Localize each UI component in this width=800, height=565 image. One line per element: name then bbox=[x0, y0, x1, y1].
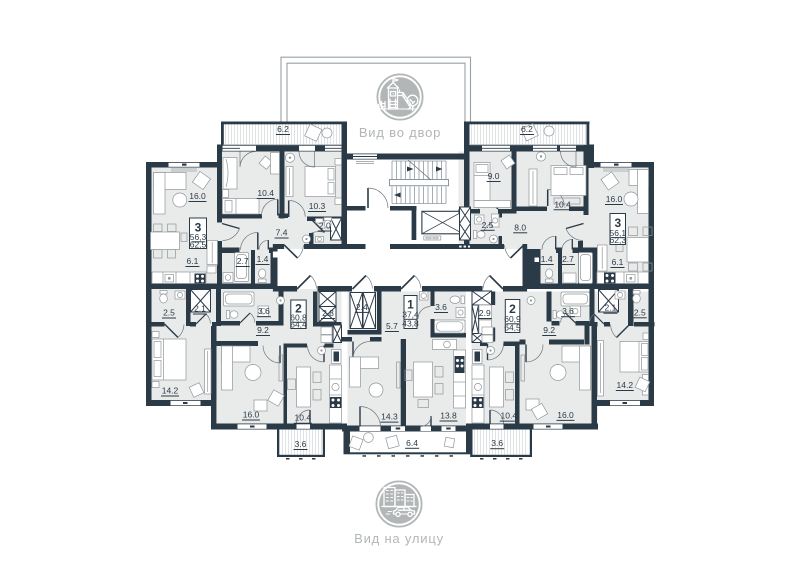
svg-text:10.4: 10.4 bbox=[257, 188, 274, 198]
svg-text:2.5: 2.5 bbox=[634, 307, 646, 317]
svg-text:14.2: 14.2 bbox=[162, 386, 179, 396]
svg-text:6.1: 6.1 bbox=[612, 257, 624, 267]
svg-text:10.4: 10.4 bbox=[295, 413, 312, 423]
svg-text:14.2: 14.2 bbox=[617, 380, 634, 390]
svg-text:2.8: 2.8 bbox=[322, 308, 334, 318]
svg-text:9.2: 9.2 bbox=[543, 325, 555, 335]
svg-text:10.3: 10.3 bbox=[309, 201, 326, 211]
svg-text:10.4: 10.4 bbox=[554, 199, 571, 209]
svg-text:10.4: 10.4 bbox=[501, 411, 518, 421]
svg-text:8.0: 8.0 bbox=[514, 222, 526, 232]
svg-text:2.9: 2.9 bbox=[479, 308, 491, 318]
svg-text:43,8: 43,8 bbox=[402, 319, 419, 329]
svg-text:16.0: 16.0 bbox=[606, 194, 623, 204]
svg-text:2.0: 2.0 bbox=[319, 221, 331, 231]
svg-text:2.7: 2.7 bbox=[562, 254, 574, 264]
svg-text:16.0: 16.0 bbox=[243, 410, 260, 420]
svg-text:62,3: 62,3 bbox=[610, 235, 627, 245]
svg-text:1.4: 1.4 bbox=[541, 254, 553, 264]
svg-text:2.1: 2.1 bbox=[194, 304, 206, 314]
svg-text:2.5: 2.5 bbox=[482, 220, 494, 230]
svg-text:6.4: 6.4 bbox=[406, 438, 418, 448]
svg-text:16.0: 16.0 bbox=[557, 410, 574, 420]
svg-text:62,5: 62,5 bbox=[190, 239, 207, 249]
svg-text:5.7: 5.7 bbox=[386, 321, 398, 331]
svg-text:Вид во двор: Вид во двор bbox=[359, 125, 441, 140]
svg-text:6.1: 6.1 bbox=[186, 256, 198, 266]
svg-text:3.6: 3.6 bbox=[491, 438, 503, 448]
svg-text:6.2: 6.2 bbox=[521, 124, 533, 134]
svg-text:2.5: 2.5 bbox=[163, 308, 175, 318]
svg-text:7.4: 7.4 bbox=[276, 228, 288, 238]
svg-text:3.6: 3.6 bbox=[258, 306, 270, 316]
svg-text:14.3: 14.3 bbox=[381, 412, 398, 422]
svg-text:2.7: 2.7 bbox=[237, 256, 249, 266]
svg-text:2.4: 2.4 bbox=[356, 302, 368, 312]
svg-text:6.2: 6.2 bbox=[277, 124, 289, 134]
svg-text:9.0: 9.0 bbox=[488, 171, 500, 181]
svg-text:3.6: 3.6 bbox=[562, 306, 574, 316]
svg-text:3.6: 3.6 bbox=[295, 439, 307, 449]
svg-text:64,5: 64,5 bbox=[504, 322, 521, 332]
svg-text:Вид на улицу: Вид на улицу bbox=[354, 531, 444, 546]
svg-text:64,4: 64,4 bbox=[290, 320, 307, 330]
svg-text:3.6: 3.6 bbox=[435, 302, 447, 312]
svg-text:16.0: 16.0 bbox=[189, 191, 206, 201]
svg-text:13.8: 13.8 bbox=[440, 411, 457, 421]
svg-text:2.1: 2.1 bbox=[604, 303, 616, 313]
svg-text:1.4: 1.4 bbox=[257, 254, 269, 264]
svg-text:9.2: 9.2 bbox=[257, 325, 269, 335]
